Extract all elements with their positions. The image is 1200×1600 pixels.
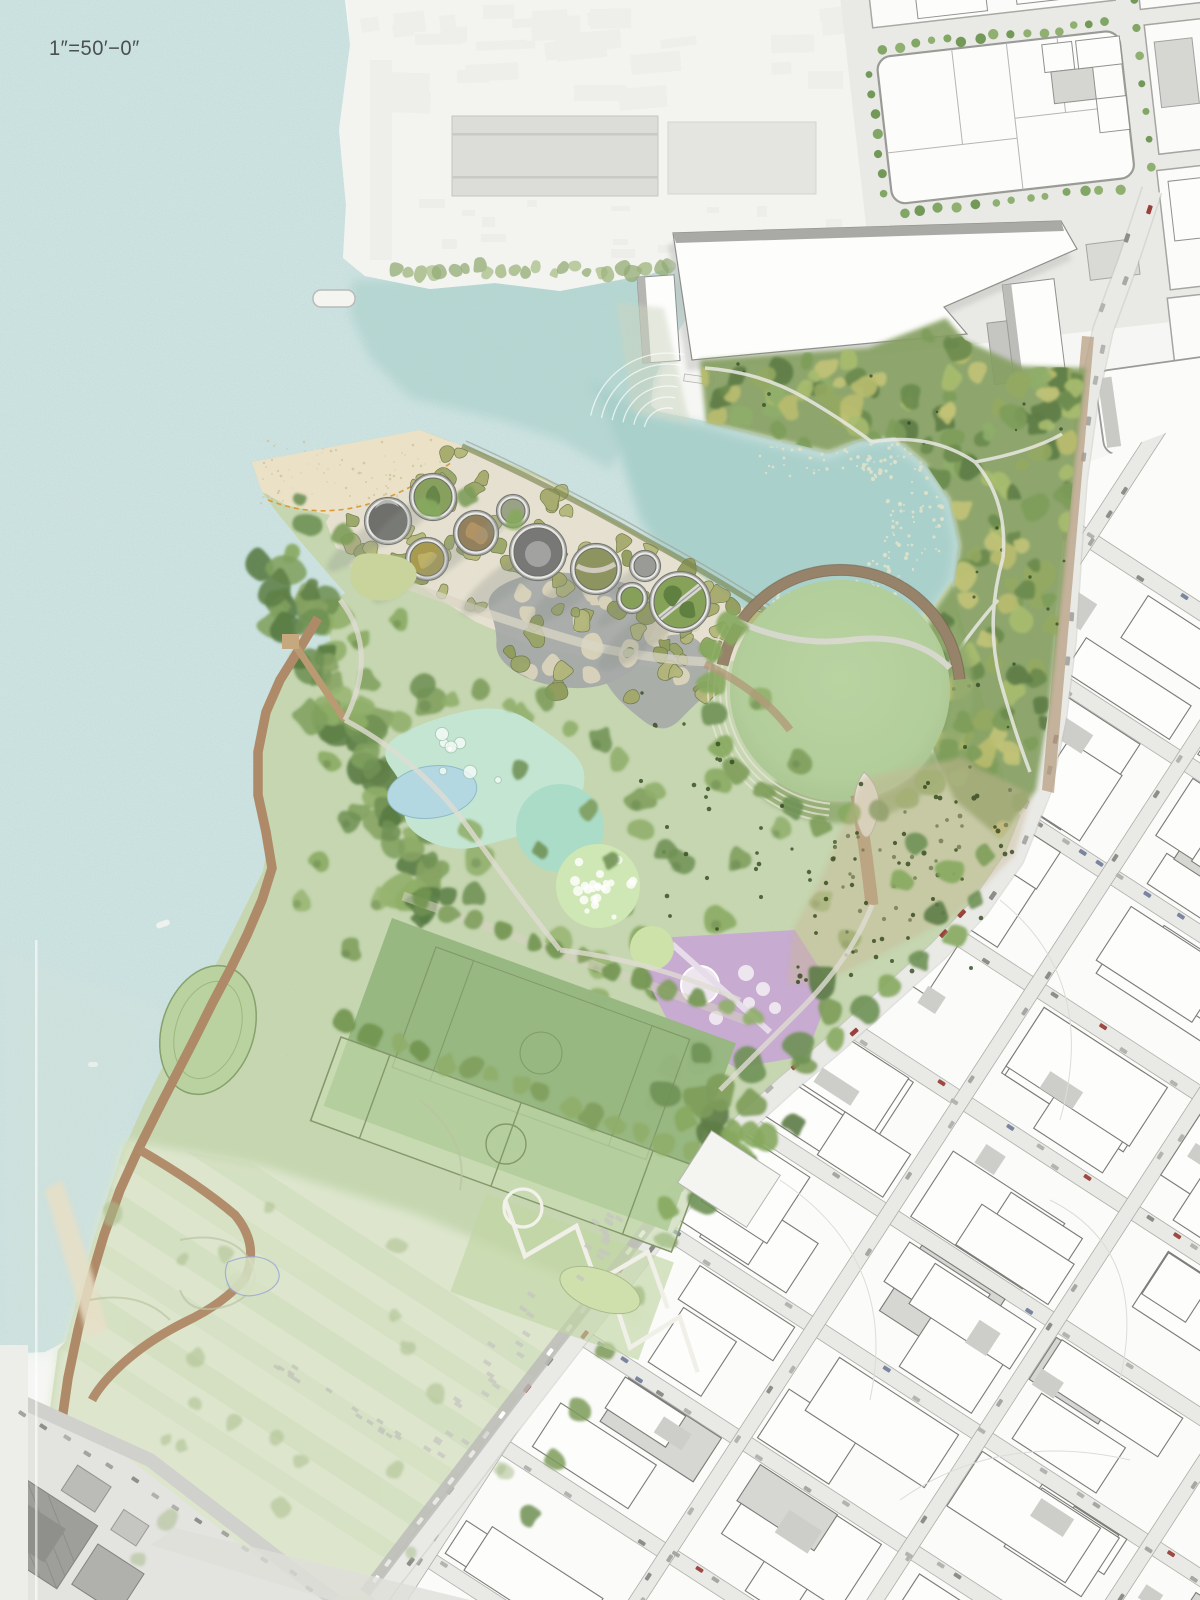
svg-text:1″=50′−0″: 1″=50′−0″ xyxy=(49,37,140,60)
